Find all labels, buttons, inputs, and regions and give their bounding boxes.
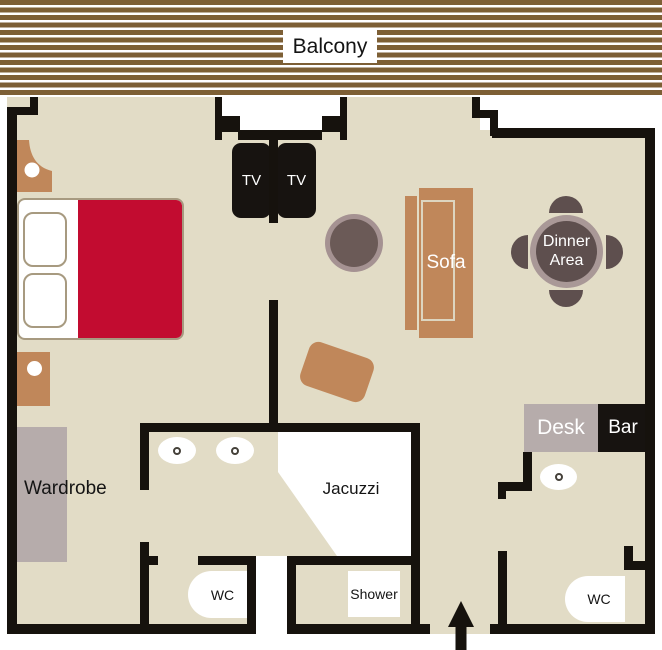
wall-top-right	[492, 128, 655, 138]
shower-label: Shower	[350, 586, 397, 602]
dining-table: Dinner Area	[530, 215, 603, 288]
lamp-icon	[27, 361, 42, 376]
tv-left: TV	[232, 143, 271, 218]
bathroom-wall-left	[140, 423, 149, 490]
wall-step	[490, 110, 498, 136]
sofa: Sofa	[419, 188, 473, 338]
lamp-icon	[25, 163, 40, 178]
dining-table-top: Dinner Area	[536, 221, 597, 282]
hallway-wall	[498, 551, 507, 634]
toilet: WC	[188, 571, 247, 618]
bed-pillow	[23, 212, 67, 267]
dinner-area-label-line2: Area	[550, 252, 584, 270]
balcony-bay-wall	[215, 97, 222, 140]
desk-wall	[498, 482, 506, 499]
wc-door-opening	[256, 556, 287, 650]
drain-icon	[231, 447, 239, 455]
wc-wall-side	[247, 556, 256, 634]
outside-area	[480, 97, 655, 130]
bathroom-wall-stub	[140, 556, 158, 565]
tv-label: TV	[242, 172, 261, 189]
wall-right	[645, 128, 655, 634]
bar-label: Bar	[608, 417, 638, 439]
tv-divider-wall	[269, 140, 278, 223]
bathroom-wall-top	[140, 423, 420, 432]
room-divider-wall	[269, 300, 278, 432]
sofa-label: Sofa	[426, 252, 465, 274]
sofa-backrest	[405, 196, 417, 330]
pouf-table-top	[330, 219, 378, 267]
balcony-bay-wall	[238, 130, 322, 140]
bed-blanket	[78, 200, 182, 338]
balcony-label-box: Balcony	[283, 30, 377, 63]
shower: Shower	[348, 571, 400, 617]
balcony-bay-wall	[340, 97, 347, 140]
basin	[158, 437, 196, 464]
wc-label: WC	[201, 587, 234, 603]
balcony-bay-wall	[322, 116, 340, 132]
drain-icon	[555, 473, 563, 481]
dinner-area-label-line1: Dinner	[543, 233, 590, 251]
bedside-unit-lower	[17, 352, 50, 406]
desk-label: Desk	[537, 416, 585, 440]
wall-bottom	[296, 624, 430, 634]
wall-left	[7, 107, 17, 634]
suite-floorplan: Balcony Wardrobe TV TV Sofa	[0, 0, 662, 650]
pouf-table	[325, 214, 383, 272]
drain-icon	[173, 447, 181, 455]
balcony-label: Balcony	[293, 35, 368, 59]
jacuzzi-label: Jacuzzi	[296, 479, 406, 499]
bathroom-wall-right	[411, 423, 420, 634]
tv-label: TV	[287, 172, 306, 189]
wardrobe-label: Wardrobe	[24, 478, 107, 500]
wc-wall-side	[287, 556, 296, 634]
entrance-arrow-icon	[448, 601, 474, 650]
bedside-unit-upper	[17, 140, 52, 192]
tv-right: TV	[277, 143, 316, 218]
desk: Desk	[524, 404, 598, 452]
wc-wall-top	[198, 556, 247, 565]
wc-niche-wall	[624, 561, 648, 570]
bed	[17, 198, 184, 340]
wall-bottom	[490, 624, 655, 634]
wall-step	[17, 107, 38, 115]
toilet: WC	[565, 576, 625, 622]
bed-pillow	[23, 273, 67, 328]
bar: Bar	[598, 404, 648, 452]
basin	[540, 464, 577, 490]
basin	[216, 437, 254, 464]
wc-label: WC	[579, 591, 610, 607]
shower-wall-top	[287, 556, 420, 565]
wall-bottom	[7, 624, 247, 634]
